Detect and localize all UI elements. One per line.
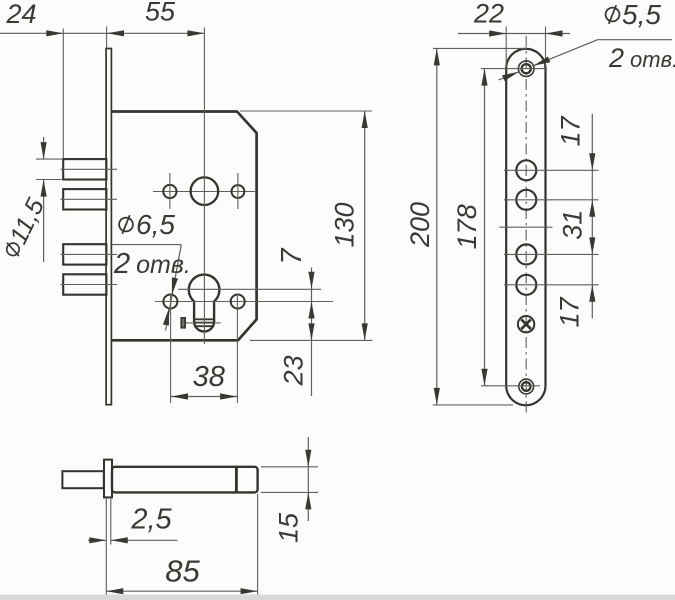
svg-text:7: 7: [276, 247, 308, 265]
svg-text:15: 15: [274, 512, 304, 543]
svg-text:24: 24: [5, 0, 36, 29]
svg-text:17: 17: [556, 116, 586, 147]
svg-text:178: 178: [452, 204, 482, 249]
svg-text:5,5: 5,5: [622, 0, 661, 30]
svg-text:2отв.: 2отв.: [113, 248, 191, 280]
svg-text:22: 22: [473, 0, 504, 29]
svg-text:200: 200: [405, 202, 435, 248]
svg-text:38: 38: [193, 361, 225, 393]
svg-text:23: 23: [278, 355, 308, 386]
svg-text:2отв.: 2отв.: [608, 43, 675, 73]
svg-text:2,5: 2,5: [130, 504, 172, 536]
svg-text:31: 31: [558, 210, 588, 240]
svg-text:55: 55: [145, 0, 176, 27]
svg-text:6,5: 6,5: [136, 209, 175, 240]
svg-text:130: 130: [330, 202, 360, 247]
svg-text:17: 17: [555, 297, 585, 328]
svg-text:85: 85: [165, 554, 200, 589]
